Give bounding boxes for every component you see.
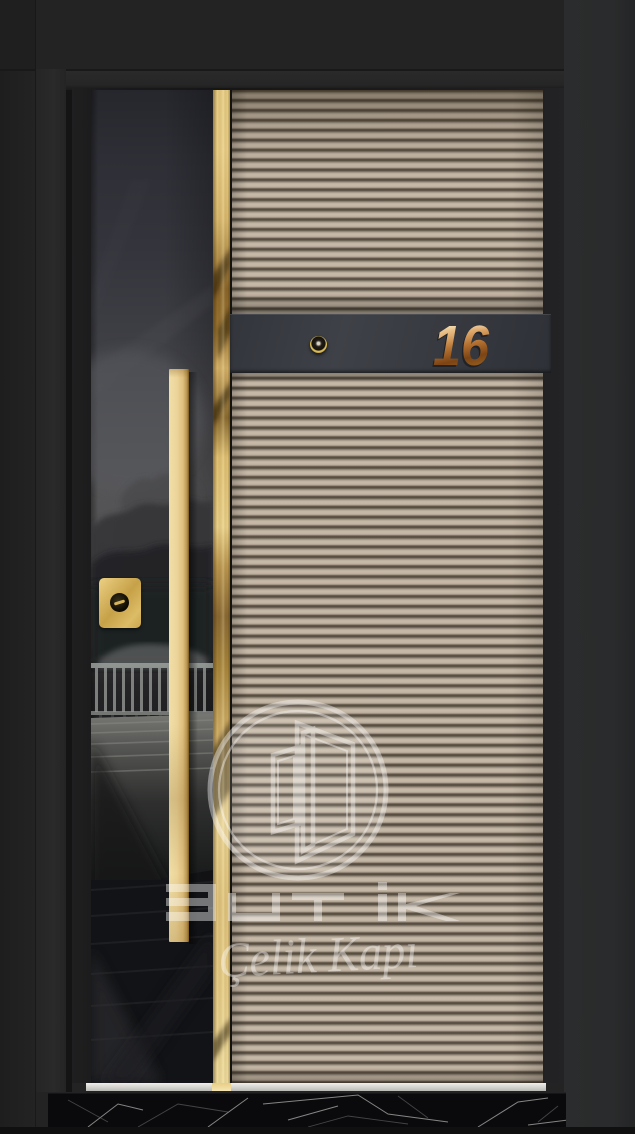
svg-text:Çelik Kapı: Çelik Kapı [217,922,420,988]
